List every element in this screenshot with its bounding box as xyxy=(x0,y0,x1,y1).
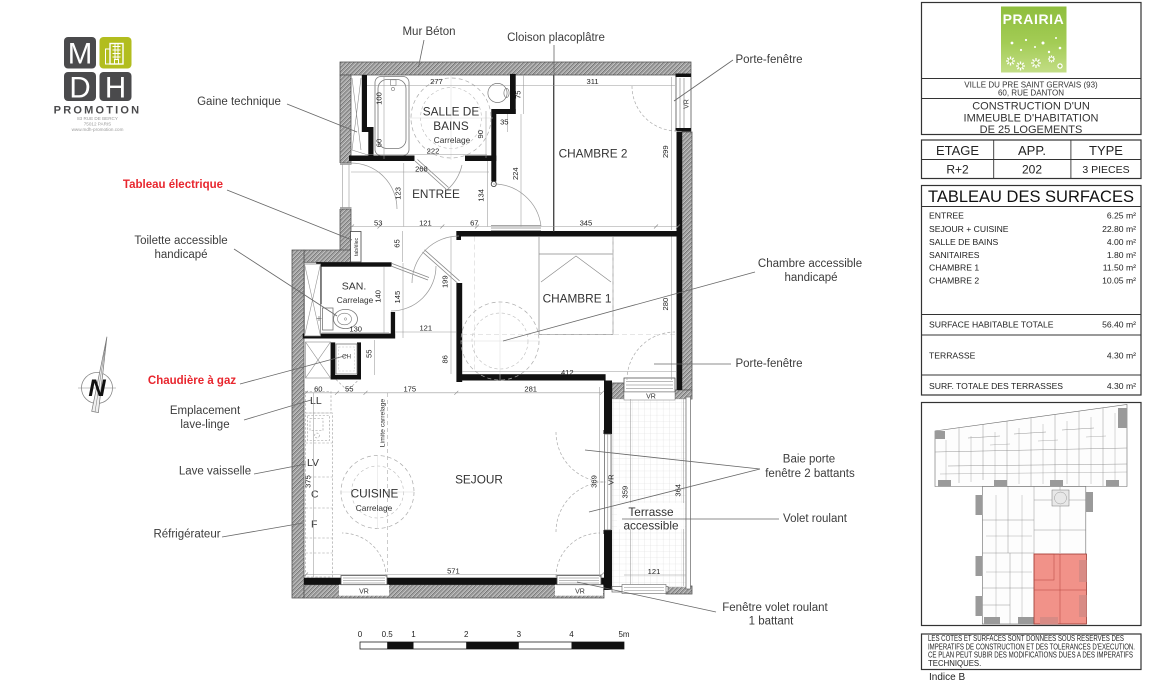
svg-text:Chambre accessible: Chambre accessible xyxy=(758,258,862,270)
svg-text:299: 299 xyxy=(661,145,670,158)
svg-text:Emplacement: Emplacement xyxy=(170,405,241,417)
svg-text:SALLE DE BAINS: SALLE DE BAINS xyxy=(929,237,999,247)
svg-text:10.05 m²: 10.05 m² xyxy=(1102,276,1136,286)
svg-text:375: 375 xyxy=(303,475,312,488)
svg-text:3: 3 xyxy=(517,630,522,639)
svg-text:280: 280 xyxy=(661,298,670,311)
svg-text:Carrelage: Carrelage xyxy=(337,295,374,305)
svg-text:CHAMBRE 1: CHAMBRE 1 xyxy=(929,263,979,273)
svg-text:60, RUE DANTON: 60, RUE DANTON xyxy=(998,89,1064,98)
svg-text:60: 60 xyxy=(374,139,383,147)
svg-text:222: 222 xyxy=(427,147,440,156)
svg-text:Porte-fenêtre: Porte-fenêtre xyxy=(735,358,802,370)
svg-text:Fenêtre volet roulant: Fenêtre volet roulant xyxy=(722,602,828,614)
svg-text:134: 134 xyxy=(477,189,486,202)
svg-text:22.80 m²: 22.80 m² xyxy=(1102,224,1136,234)
svg-text:75012 PARIS: 75012 PARIS xyxy=(84,122,112,127)
svg-text:311: 311 xyxy=(587,77,599,86)
svg-text:TECHNIQUES.: TECHNIQUES. xyxy=(928,659,981,668)
svg-text:1 battant: 1 battant xyxy=(749,616,795,628)
svg-text:83 RUE DE BERCY: 83 RUE DE BERCY xyxy=(77,116,118,121)
svg-text:SEJOUR: SEJOUR xyxy=(455,473,503,487)
svg-text:PROMOTION: PROMOTION xyxy=(54,105,142,117)
svg-text:ENTREE: ENTREE xyxy=(929,211,964,221)
svg-text:handicapé: handicapé xyxy=(784,272,837,284)
svg-text:CH: CH xyxy=(342,354,352,361)
svg-text:Tableau électrique: Tableau électrique xyxy=(123,179,223,191)
svg-text:VR: VR xyxy=(646,394,656,401)
svg-text:ENTREE: ENTREE xyxy=(412,187,460,201)
svg-text:APP.: APP. xyxy=(1018,143,1046,158)
svg-text:www.mdh-promotion.com: www.mdh-promotion.com xyxy=(72,127,124,132)
svg-text:11.50 m²: 11.50 m² xyxy=(1103,263,1136,273)
svg-text:4.00 m²: 4.00 m² xyxy=(1107,237,1136,247)
svg-text:53: 53 xyxy=(374,219,382,228)
svg-text:Toilette accessible: Toilette accessible xyxy=(134,235,227,247)
svg-text:CHAMBRE 1: CHAMBRE 1 xyxy=(543,292,612,306)
svg-text:86: 86 xyxy=(441,355,450,363)
svg-text:Réfrigérateur: Réfrigérateur xyxy=(153,529,220,541)
svg-text:100: 100 xyxy=(374,92,383,105)
svg-text:175: 175 xyxy=(403,385,416,394)
svg-text:SURFACE HABITABLE TOTALE: SURFACE HABITABLE TOTALE xyxy=(929,320,1054,330)
svg-text:121: 121 xyxy=(648,567,661,576)
svg-text:D: D xyxy=(69,72,90,105)
svg-text:281: 281 xyxy=(524,385,537,394)
svg-text:1: 1 xyxy=(411,630,416,639)
svg-text:Cloison placoplâtre: Cloison placoplâtre xyxy=(507,32,605,44)
svg-text:Lave vaisselle: Lave vaisselle xyxy=(179,466,251,478)
svg-text:F: F xyxy=(311,519,317,531)
svg-text:R+2: R+2 xyxy=(946,163,969,177)
svg-text:4: 4 xyxy=(569,630,574,639)
svg-text:277: 277 xyxy=(430,77,443,86)
svg-text:DE 25 LOGEMENTS: DE 25 LOGEMENTS xyxy=(980,124,1083,136)
svg-text:CONSTRUCTION D'UN: CONSTRUCTION D'UN xyxy=(972,101,1090,113)
svg-text:121: 121 xyxy=(419,324,432,333)
svg-text:M: M xyxy=(68,38,93,71)
svg-text:56.40 m²: 56.40 m² xyxy=(1102,320,1136,330)
svg-text:571: 571 xyxy=(447,566,460,575)
svg-text:SALLE DE: SALLE DE xyxy=(423,105,480,119)
svg-text:Limite carrelage: Limite carrelage xyxy=(380,399,387,448)
svg-text:CHAMBRE 2: CHAMBRE 2 xyxy=(559,147,628,161)
svg-text:IMMEUBLE D'HABITATION: IMMEUBLE D'HABITATION xyxy=(964,113,1099,125)
svg-text:Terrasse: Terrasse xyxy=(628,505,674,519)
svg-text:60: 60 xyxy=(314,385,322,394)
svg-text:4.30 m²: 4.30 m² xyxy=(1107,381,1136,391)
svg-text:fenêtre 2 battants: fenêtre 2 battants xyxy=(765,468,855,480)
svg-text:268: 268 xyxy=(415,165,428,174)
svg-text:Mur Béton: Mur Béton xyxy=(402,26,455,38)
svg-text:TABLEAU DES SURFACES: TABLEAU DES SURFACES xyxy=(928,188,1134,206)
svg-text:224: 224 xyxy=(511,167,520,180)
svg-text:BAINS: BAINS xyxy=(433,119,469,133)
svg-text:65: 65 xyxy=(392,239,401,247)
svg-text:412: 412 xyxy=(561,368,574,377)
svg-text:ETAGE: ETAGE xyxy=(936,143,979,158)
svg-text:LV: LV xyxy=(307,457,319,469)
svg-text:55: 55 xyxy=(364,350,373,358)
svg-text:SURF. TOTALE DES TERRASSES: SURF. TOTALE DES TERRASSES xyxy=(929,381,1063,391)
svg-text:199: 199 xyxy=(441,275,450,288)
svg-text:SANITAIRES: SANITAIRES xyxy=(929,250,980,260)
svg-text:CHAMBRE 2: CHAMBRE 2 xyxy=(929,276,979,286)
svg-text:359: 359 xyxy=(620,486,629,499)
svg-text:3 PIECES: 3 PIECES xyxy=(1082,164,1129,176)
svg-text:0.5: 0.5 xyxy=(382,630,394,639)
svg-text:VR: VR xyxy=(607,474,616,485)
svg-text:lave-linge: lave-linge xyxy=(180,419,229,431)
svg-text:CUISINE: CUISINE xyxy=(351,487,399,501)
svg-text:130: 130 xyxy=(349,325,362,334)
svg-text:369: 369 xyxy=(589,475,598,488)
svg-text:202: 202 xyxy=(1022,163,1042,177)
svg-text:SEJOUR + CUISINE: SEJOUR + CUISINE xyxy=(929,224,1009,234)
svg-text:6.25 m²: 6.25 m² xyxy=(1107,211,1136,221)
svg-text:Volet roulant: Volet roulant xyxy=(783,513,848,525)
svg-text:35: 35 xyxy=(500,118,508,127)
svg-text:VR: VR xyxy=(575,589,585,596)
svg-text:VR: VR xyxy=(359,589,369,596)
svg-text:N: N xyxy=(88,375,106,402)
svg-text:Carrelage: Carrelage xyxy=(434,135,471,145)
svg-text:67: 67 xyxy=(470,219,478,228)
svg-text:SAN.: SAN. xyxy=(342,281,367,293)
svg-text:Carrelage: Carrelage xyxy=(356,503,393,513)
svg-text:Gaine technique: Gaine technique xyxy=(197,96,281,108)
svg-text:handicapé: handicapé xyxy=(154,249,207,261)
svg-text:VR: VR xyxy=(684,99,691,109)
svg-text:TYPE: TYPE xyxy=(1089,143,1123,158)
svg-text:Indice B: Indice B xyxy=(929,672,965,683)
svg-text:LL: LL xyxy=(310,395,322,407)
svg-text:90: 90 xyxy=(476,130,485,138)
svg-text:Baie porte: Baie porte xyxy=(783,454,835,466)
svg-text:345: 345 xyxy=(580,219,593,228)
svg-text:2: 2 xyxy=(464,630,469,639)
svg-text:C: C xyxy=(311,489,319,501)
svg-text:Chaudière à gaz: Chaudière à gaz xyxy=(148,375,236,387)
svg-text:PRAIRIA: PRAIRIA xyxy=(1003,11,1065,27)
svg-text:121: 121 xyxy=(419,219,432,228)
svg-text:4.30 m²: 4.30 m² xyxy=(1107,351,1136,361)
svg-text:123: 123 xyxy=(394,187,403,200)
svg-text:Porte-fenêtre: Porte-fenêtre xyxy=(735,54,802,66)
svg-text:140: 140 xyxy=(374,290,383,303)
svg-text:TERRASSE: TERRASSE xyxy=(929,351,976,361)
svg-text:55: 55 xyxy=(345,385,353,394)
svg-text:75: 75 xyxy=(513,90,522,98)
svg-text:145: 145 xyxy=(393,291,402,304)
svg-text:H: H xyxy=(105,72,126,105)
svg-text:accessible: accessible xyxy=(623,519,679,533)
svg-text:1.80 m²: 1.80 m² xyxy=(1107,250,1136,260)
svg-text:0: 0 xyxy=(358,630,363,639)
svg-text:tab/élec: tab/élec xyxy=(354,238,360,257)
svg-text:5m: 5m xyxy=(618,630,629,639)
